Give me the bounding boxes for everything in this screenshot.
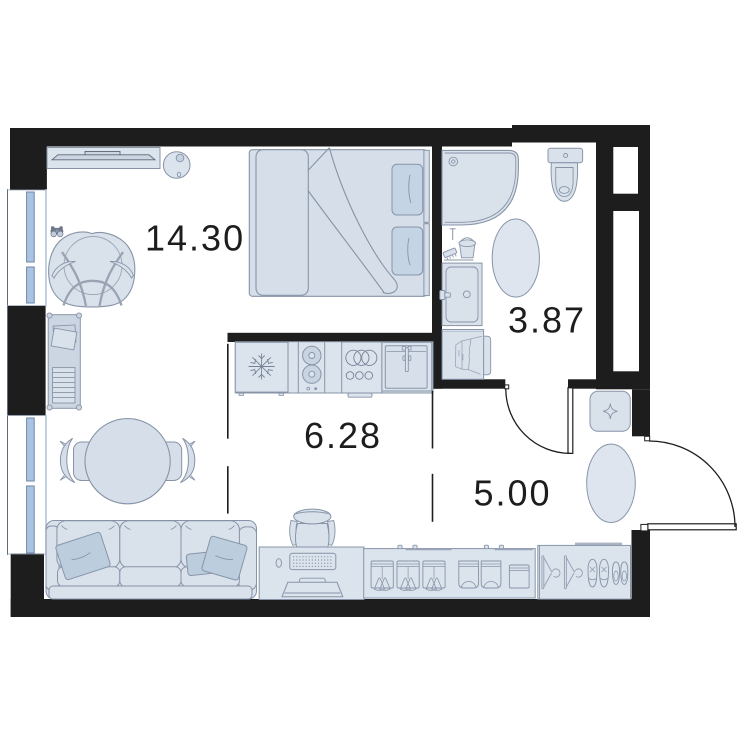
- svg-text:14.30: 14.30: [145, 218, 245, 259]
- svg-text:5.00: 5.00: [474, 473, 552, 514]
- svg-text:6.28: 6.28: [304, 415, 382, 456]
- svg-text:3.87: 3.87: [508, 300, 586, 341]
